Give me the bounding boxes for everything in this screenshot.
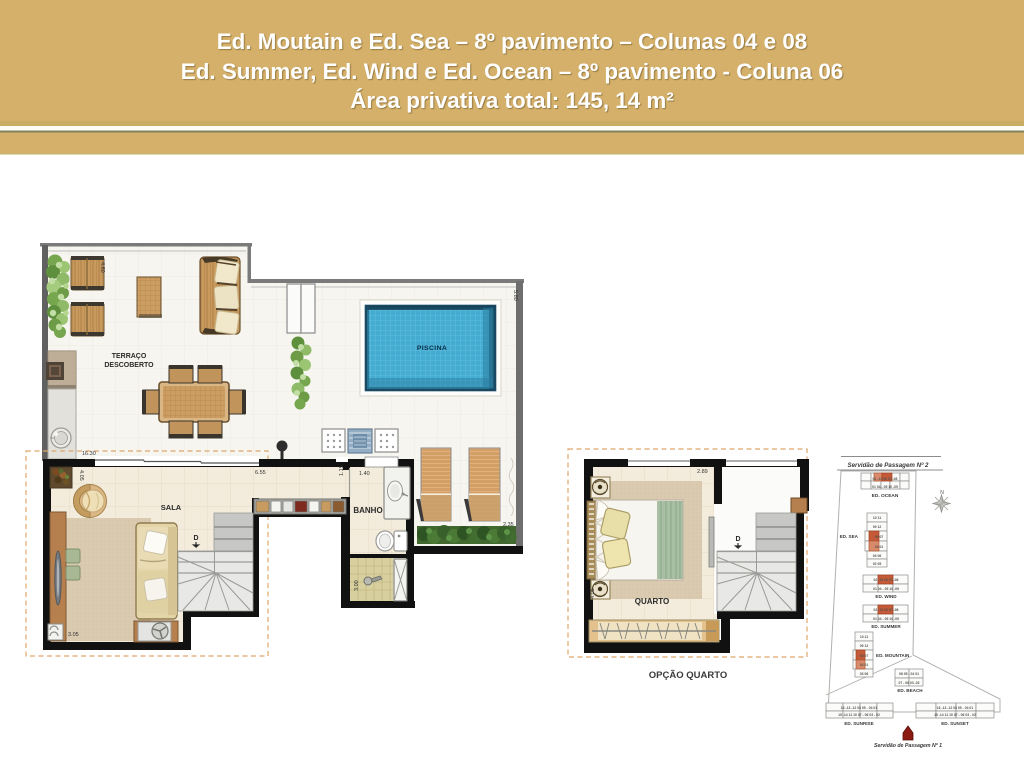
svg-text:ED. SEA: ED. SEA — [840, 534, 859, 539]
svg-text:04 01: 04 01 — [875, 545, 884, 549]
svg-text:07 - 06 03 -02: 07 - 06 03 -02 — [898, 681, 919, 685]
svg-text:08 05 - 04 01: 08 05 - 04 01 — [899, 672, 919, 676]
svg-text:02 05: 02 05 — [873, 562, 882, 566]
svg-text:01 04 - 05 10 -09: 01 04 - 05 10 -09 — [873, 617, 899, 621]
svg-text:D: D — [735, 536, 740, 543]
svg-text:09 12: 09 12 — [860, 644, 869, 648]
svg-text:3.05: 3.05 — [68, 632, 79, 638]
svg-text:10 11: 10 11 — [860, 635, 868, 639]
svg-text:D: D — [193, 535, 198, 542]
svg-text:PISCINA: PISCINA — [417, 345, 447, 352]
svg-text:Ed. Moutain e Ed. Sea – 8º pav: Ed. Moutain e Ed. Sea – 8º pavimento – C… — [217, 29, 808, 54]
svg-text:02 -13 06 07 -08: 02 -13 06 07 -08 — [874, 608, 899, 612]
svg-text:Servidão de Passagem Nº 1: Servidão de Passagem Nº 1 — [874, 743, 942, 749]
svg-text:ED. BEACH: ED. BEACH — [897, 688, 923, 693]
svg-text:01 04 - 05 10 -09: 01 04 - 05 10 -09 — [872, 485, 898, 489]
svg-text:4.05: 4.05 — [590, 588, 596, 599]
svg-text:10 11: 10 11 — [873, 516, 881, 520]
svg-text:ED. WIND: ED. WIND — [875, 594, 897, 599]
svg-text:TERRAÇO: TERRAÇO — [112, 353, 147, 360]
svg-text:16 -13 -12 08 05 - 04 01: 16 -13 -12 08 05 - 04 01 — [841, 706, 877, 710]
svg-text:ED. OCEAN: ED. OCEAN — [872, 493, 899, 499]
svg-text:15 -14 11 10 07 - 06 03 - 02: 15 -14 11 10 07 - 06 03 - 02 — [934, 713, 976, 717]
svg-text:ED. MOUNTAIN: ED. MOUNTAIN — [876, 653, 910, 658]
svg-text:ED. SUNRISE: ED. SUNRISE — [844, 721, 873, 726]
svg-text:BANHO: BANHO — [353, 506, 382, 515]
svg-text:15 -14 11 10 07 - 06 03 - 02: 15 -14 11 10 07 - 06 03 - 02 — [838, 713, 880, 717]
svg-text:2.89: 2.89 — [697, 469, 708, 475]
svg-text:OPÇÃO QUARTO: OPÇÃO QUARTO — [649, 670, 727, 681]
svg-text:DESCOBERTO: DESCOBERTO — [104, 362, 154, 369]
svg-text:4.60: 4.60 — [99, 262, 105, 273]
svg-text:ED. SUNSET: ED. SUNSET — [941, 721, 969, 726]
svg-text:08 07: 08 07 — [875, 535, 884, 539]
svg-text:3.00: 3.00 — [354, 580, 360, 591]
svg-text:SALA: SALA — [161, 503, 182, 512]
svg-text:Servidão de Passagem Nº 2: Servidão de Passagem Nº 2 — [847, 462, 929, 469]
svg-text:02 -13 06 07 -08: 02 -13 06 07 -08 — [874, 578, 899, 582]
svg-text:4.05: 4.05 — [78, 470, 84, 481]
svg-text:09 12: 09 12 — [873, 525, 882, 529]
svg-text:03 06: 03 06 — [860, 672, 869, 676]
svg-text:Área privativa total: 145, 14: Área privativa total: 145, 14 m² — [350, 88, 674, 113]
svg-text:ED. SUMMER: ED. SUMMER — [871, 624, 901, 629]
svg-text:08 07: 08 07 — [860, 654, 869, 658]
svg-text:6.55: 6.55 — [255, 470, 266, 476]
svg-text:1.40: 1.40 — [359, 471, 370, 477]
svg-text:16 -13 -12 08 05 - 04 01: 16 -13 -12 08 05 - 04 01 — [937, 706, 973, 710]
svg-text:QUARTO: QUARTO — [635, 597, 670, 606]
svg-text:16.30: 16.30 — [82, 451, 96, 457]
svg-text:Ed. Summer, Ed. Wind e Ed. Oc: Ed. Summer, Ed. Wind e Ed. Ocean – 8º pa… — [181, 59, 843, 84]
svg-text:5.80: 5.80 — [512, 290, 518, 301]
svg-text:03 06: 03 06 — [873, 554, 882, 558]
svg-text:04 01: 04 01 — [860, 663, 869, 667]
svg-text:N: N — [940, 490, 944, 496]
svg-text:02 -13 06 07 -08: 02 -13 06 07 -08 — [873, 477, 898, 481]
svg-text:01 04 - 05 10 -09: 01 04 - 05 10 -09 — [873, 587, 899, 591]
